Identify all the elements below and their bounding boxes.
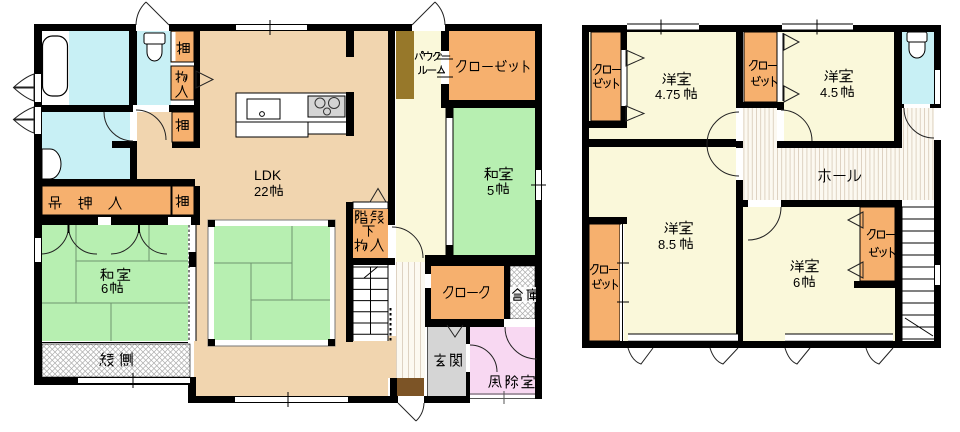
svg-text:5: 5 [487, 183, 494, 198]
svg-text:6: 6 [101, 281, 108, 296]
svg-text:4.5: 4.5 [820, 85, 838, 100]
svg-text:LDK: LDK [254, 167, 282, 183]
svg-text:6: 6 [793, 275, 800, 290]
svg-text:22: 22 [254, 184, 268, 199]
svg-text:8.5: 8.5 [658, 237, 676, 252]
svg-text:4.75: 4.75 [655, 87, 680, 102]
